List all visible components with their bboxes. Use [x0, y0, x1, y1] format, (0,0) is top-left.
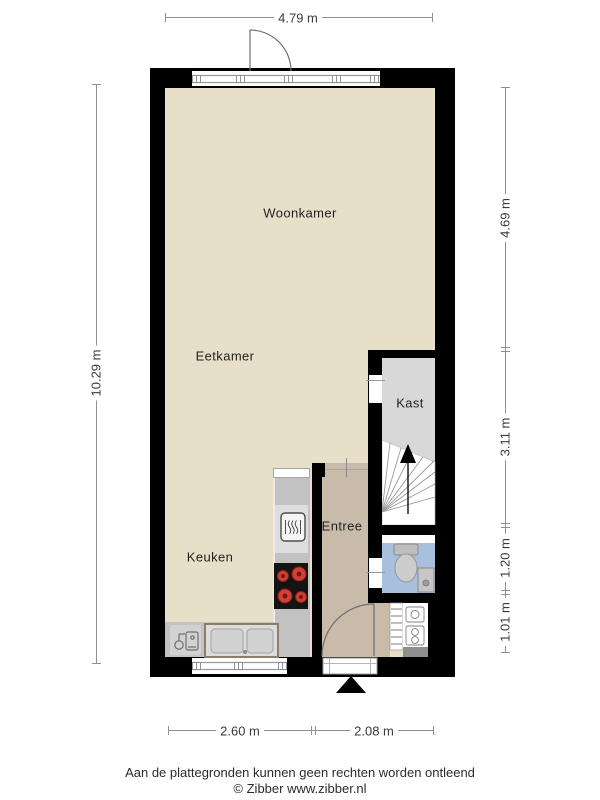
dimension-right-2: 3.11 m [498, 414, 513, 461]
oven-icon [281, 513, 305, 541]
dimension-right-3: 1.20 m [498, 534, 513, 582]
dimension-bottom-2: 2.08 m [350, 724, 398, 739]
room-label-entree: Entree [322, 519, 363, 534]
dimension-bottom-1: 2.60 m [216, 724, 264, 739]
boiler-tap-icon [170, 625, 201, 655]
entrance-door-sill [323, 658, 377, 674]
louver-door-icon [390, 603, 403, 650]
room-label-kast: Kast [396, 396, 424, 411]
meter-cabinet-right-wall [428, 603, 435, 657]
dimension-right-1: 4.69 m [498, 194, 513, 242]
entree-top-wall-left [312, 463, 325, 477]
induction-hob-icon [274, 563, 308, 609]
balcony-door-icon [250, 30, 291, 71]
meter-icon [406, 607, 424, 645]
hand-basin-icon [418, 568, 434, 592]
toilet-icon [394, 544, 418, 582]
dimension-top: 4.79 m [274, 11, 322, 26]
room-label-keuken: Keuken [187, 550, 234, 565]
top-window-icon [192, 71, 380, 86]
kitchen-hall-wall [312, 463, 322, 657]
dimension-right-4: 1.01 m [498, 598, 513, 646]
footer-credit: © Zibber www.zibber.nl [0, 781, 600, 796]
entree-floor-lower [322, 603, 390, 657]
toilet-top-strip [382, 535, 435, 543]
entrance-marker-icon [336, 676, 366, 693]
kitchen-window-icon [192, 658, 287, 674]
double-sink-icon [205, 624, 278, 657]
room-label-eetkamer: Eetkamer [196, 349, 255, 364]
footer-disclaimer: Aan de plattegronden kunnen geen rechten… [0, 765, 600, 780]
room-label-woonkamer: Woonkamer [263, 206, 336, 221]
dimension-left: 10.29 m [89, 346, 104, 401]
meter-cabinet [390, 603, 435, 657]
floorplan-page: Woonkamer Eetkamer Keuken Entree Kast 4.… [0, 0, 600, 800]
